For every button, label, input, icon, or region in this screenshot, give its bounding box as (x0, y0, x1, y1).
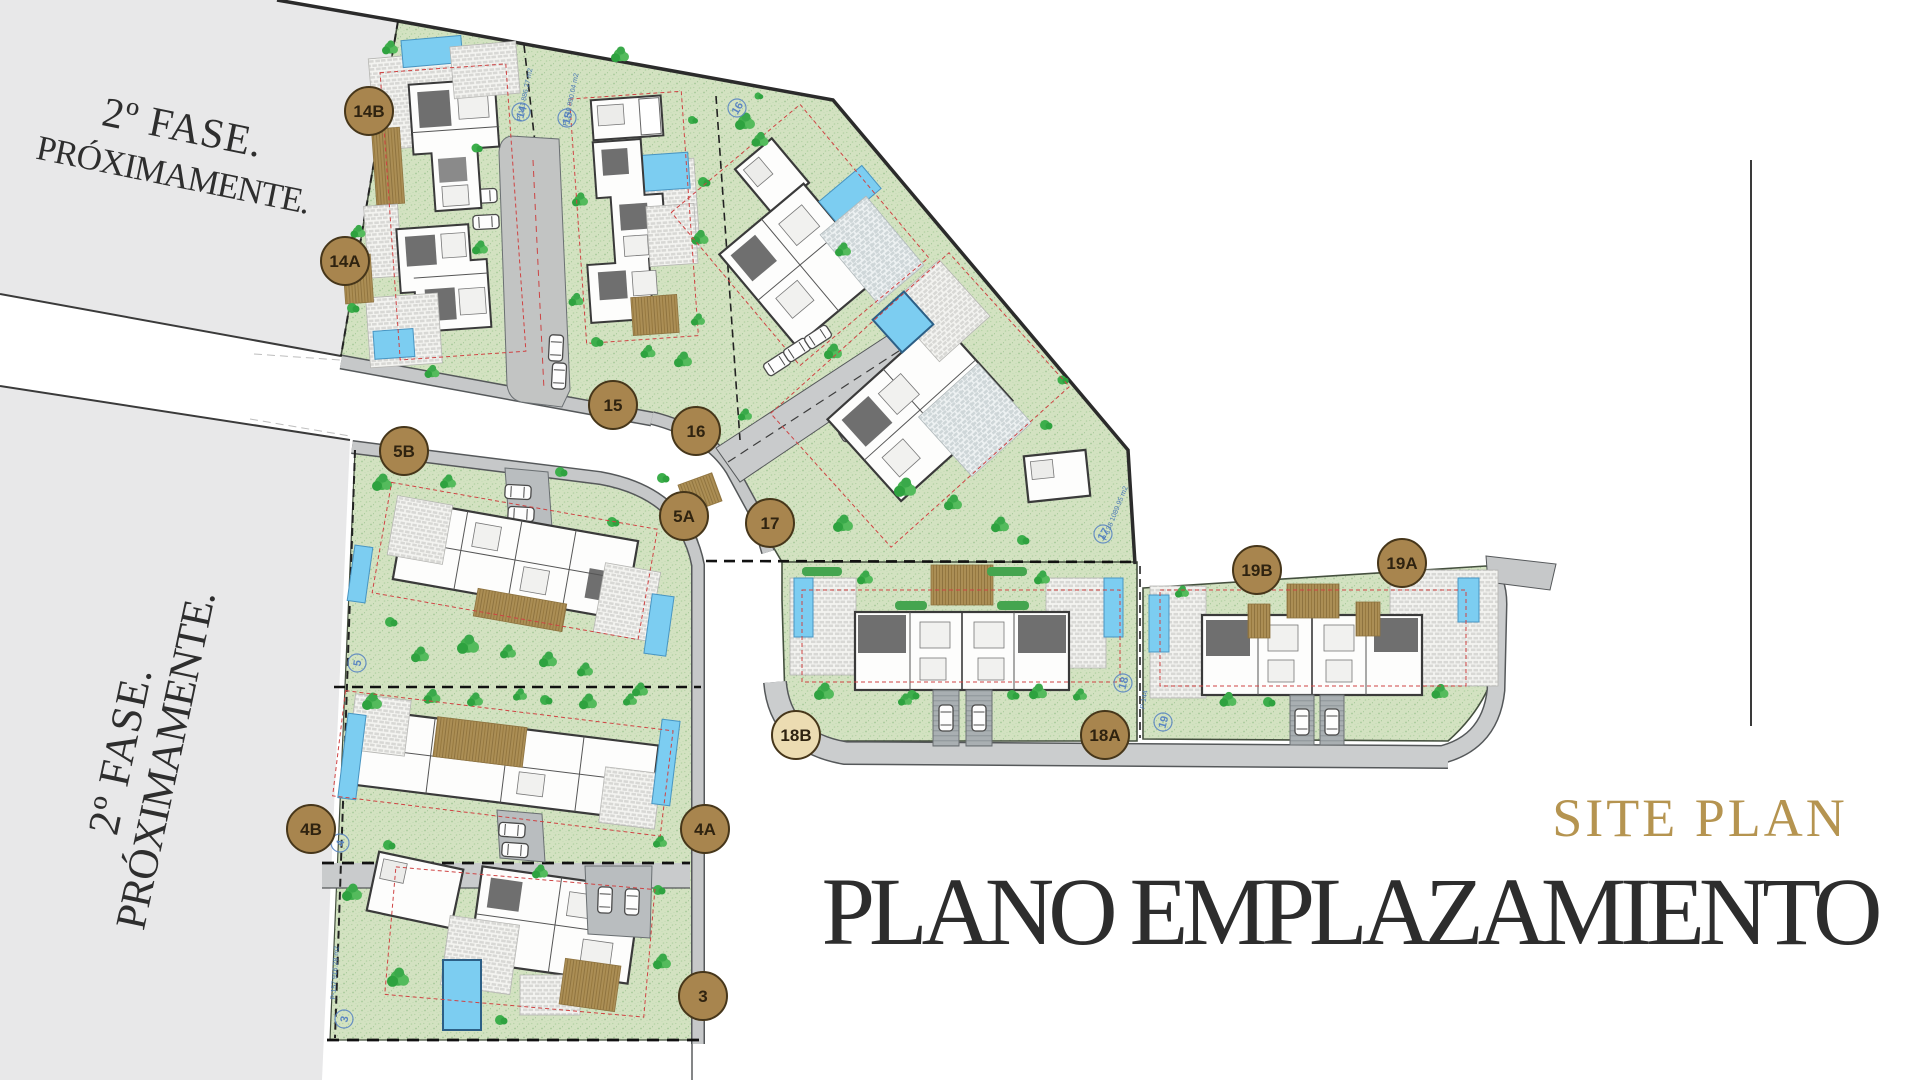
svg-text:5A: 5A (673, 507, 695, 526)
svg-text:14A: 14A (329, 252, 360, 271)
svg-text:4B: 4B (300, 820, 322, 839)
svg-text:18A: 18A (1089, 726, 1120, 745)
svg-text:16: 16 (687, 422, 706, 441)
svg-text:4A: 4A (694, 820, 716, 839)
svg-text:19A: 19A (1386, 554, 1417, 573)
svg-text:17: 17 (761, 514, 780, 533)
svg-text:19B: 19B (1241, 561, 1272, 580)
svg-text:15: 15 (604, 396, 623, 415)
svg-text:3: 3 (698, 987, 707, 1006)
svg-text:18B: 18B (780, 726, 811, 745)
svg-text:14B: 14B (353, 102, 384, 121)
svg-text:SITE PLAN: SITE PLAN (1552, 788, 1848, 848)
svg-text:PLANO EMPLAZAMIENTO: PLANO EMPLAZAMIENTO (822, 858, 1880, 965)
svg-text:5B: 5B (393, 442, 415, 461)
